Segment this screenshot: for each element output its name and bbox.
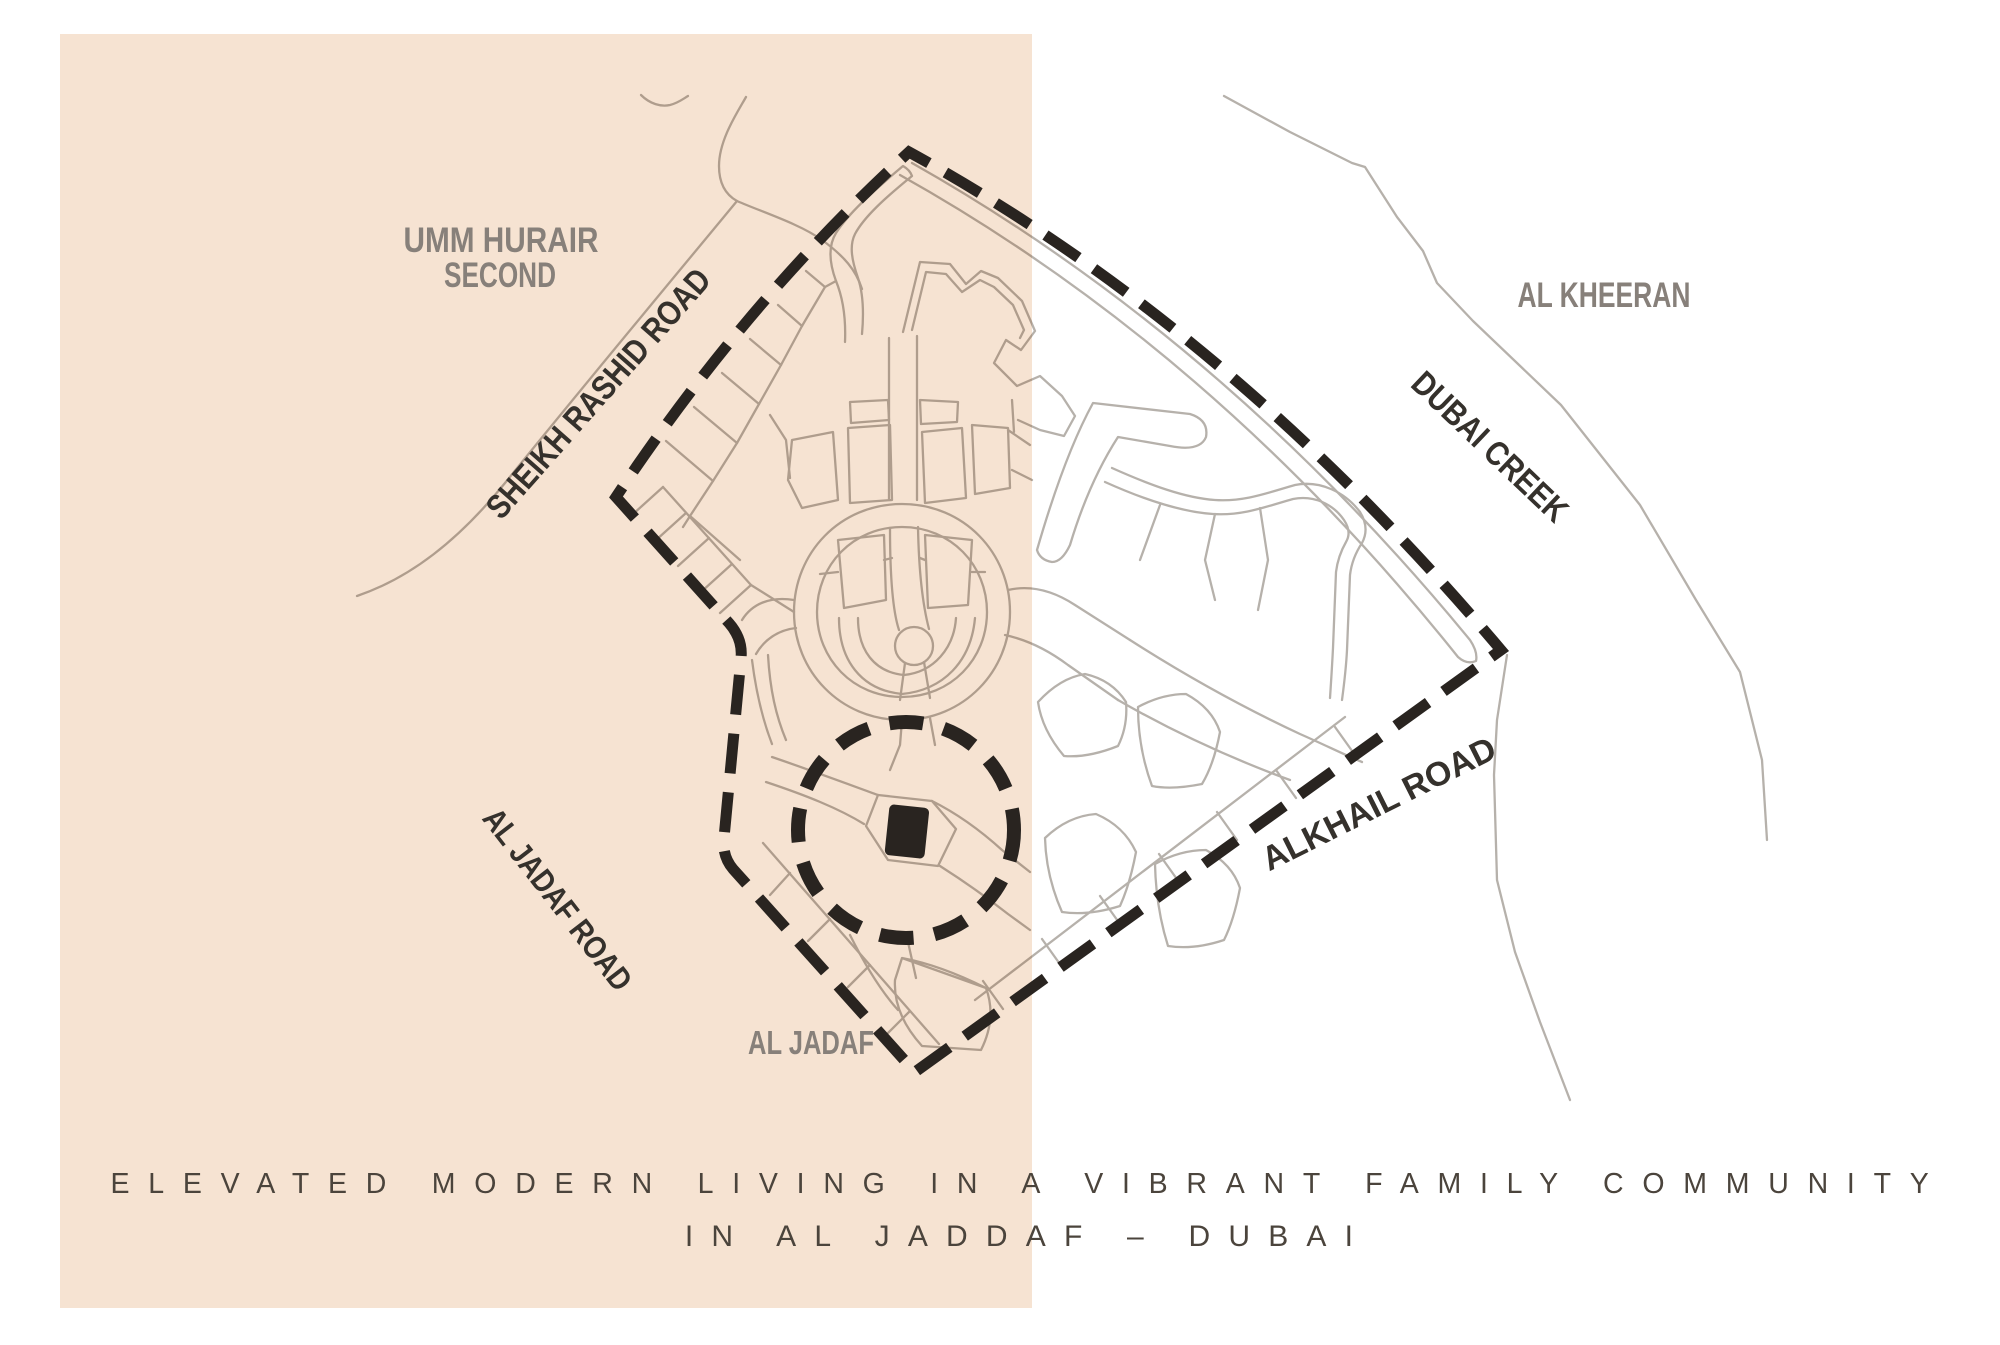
svg-text:ELEVATED MODERN LIVING IN A VI: ELEVATED MODERN LIVING IN A VIBRANT FAMI… <box>110 1168 1947 1200</box>
svg-text:IN AL JADDAF – DUBAI: IN AL JADDAF – DUBAI <box>685 1220 1371 1253</box>
svg-text:AL KHEERAN: AL KHEERAN <box>1518 276 1691 315</box>
svg-text:SECOND: SECOND <box>444 256 556 295</box>
svg-text:UMM HURAIR: UMM HURAIR <box>404 221 599 260</box>
svg-text:AL JADAF: AL JADAF <box>748 1024 874 1061</box>
